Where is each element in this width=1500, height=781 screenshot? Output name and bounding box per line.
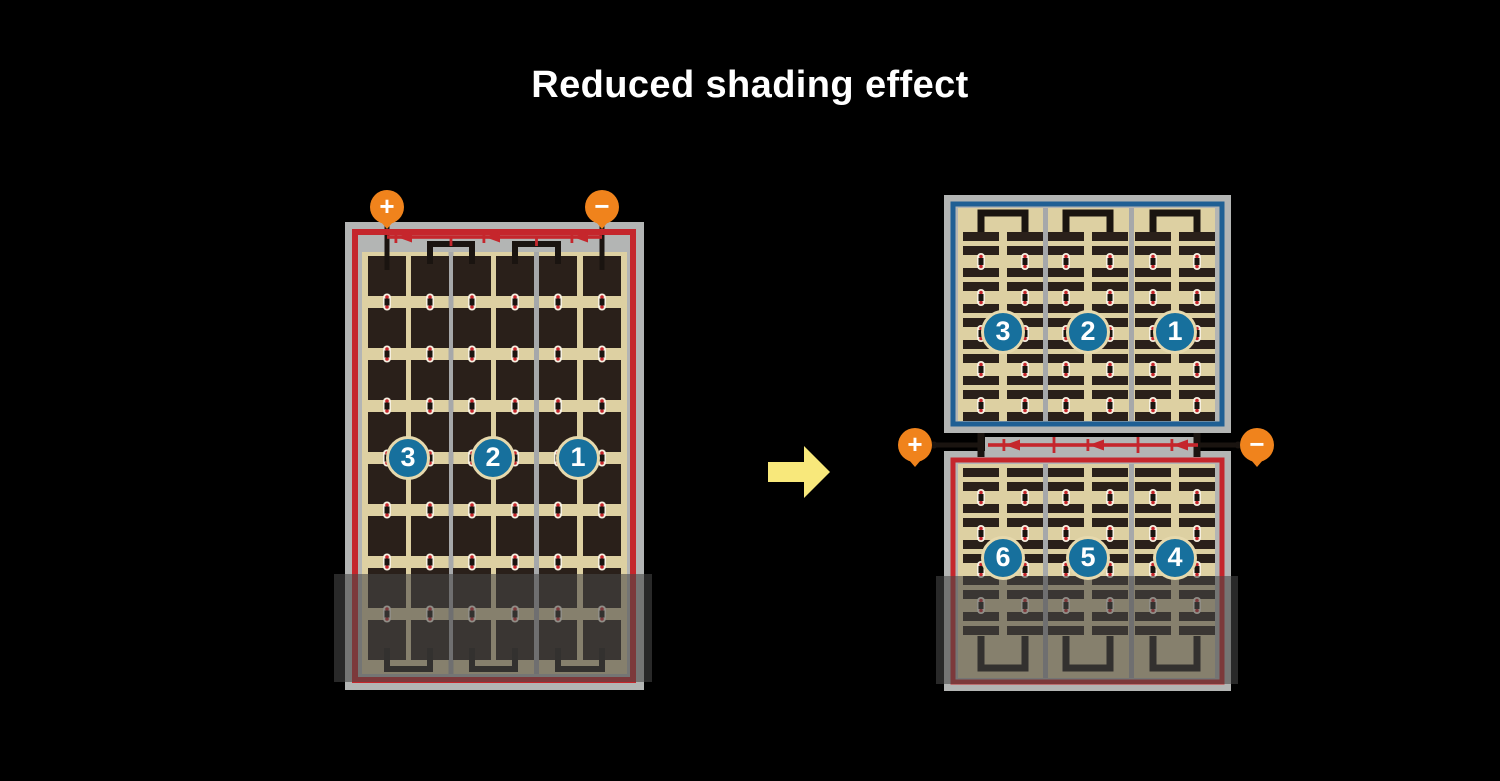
page-title: Reduced shading effect xyxy=(0,64,1500,107)
terminal-tail xyxy=(596,222,608,229)
left-panel-negative-terminal: − xyxy=(585,190,619,224)
minus-icon: − xyxy=(585,190,619,224)
right-panel-graphic xyxy=(890,180,1290,700)
right-top-string-badge-3: 3 xyxy=(981,310,1025,354)
left-string-badge-2: 2 xyxy=(471,436,515,480)
right-panel-negative-terminal: − xyxy=(1240,428,1274,462)
right-bottom-string-badge-5: 5 xyxy=(1066,536,1110,580)
plus-icon: + xyxy=(898,428,932,462)
left-string-badge-1: 1 xyxy=(556,436,600,480)
minus-icon: − xyxy=(1240,428,1274,462)
right-top-string-badge-1: 1 xyxy=(1153,310,1197,354)
right-panel-positive-terminal: + xyxy=(898,428,932,462)
right-panel-shading-band xyxy=(936,576,1238,684)
right-bottom-string-badge-4: 4 xyxy=(1153,536,1197,580)
left-string-badge-3: 3 xyxy=(386,436,430,480)
terminal-tail xyxy=(909,460,921,467)
left-panel-positive-terminal: + xyxy=(370,190,404,224)
reduced-shading-diagram: Reduced shading effect + − + − 3 2 1 3 2… xyxy=(0,0,1500,781)
left-panel-shading-band xyxy=(334,574,652,682)
right-top-string-badge-2: 2 xyxy=(1066,310,1110,354)
terminal-tail xyxy=(381,222,393,229)
right-bottom-string-badge-6: 6 xyxy=(981,536,1025,580)
terminal-tail xyxy=(1251,460,1263,467)
plus-icon: + xyxy=(370,190,404,224)
transform-arrow-icon xyxy=(762,441,838,503)
